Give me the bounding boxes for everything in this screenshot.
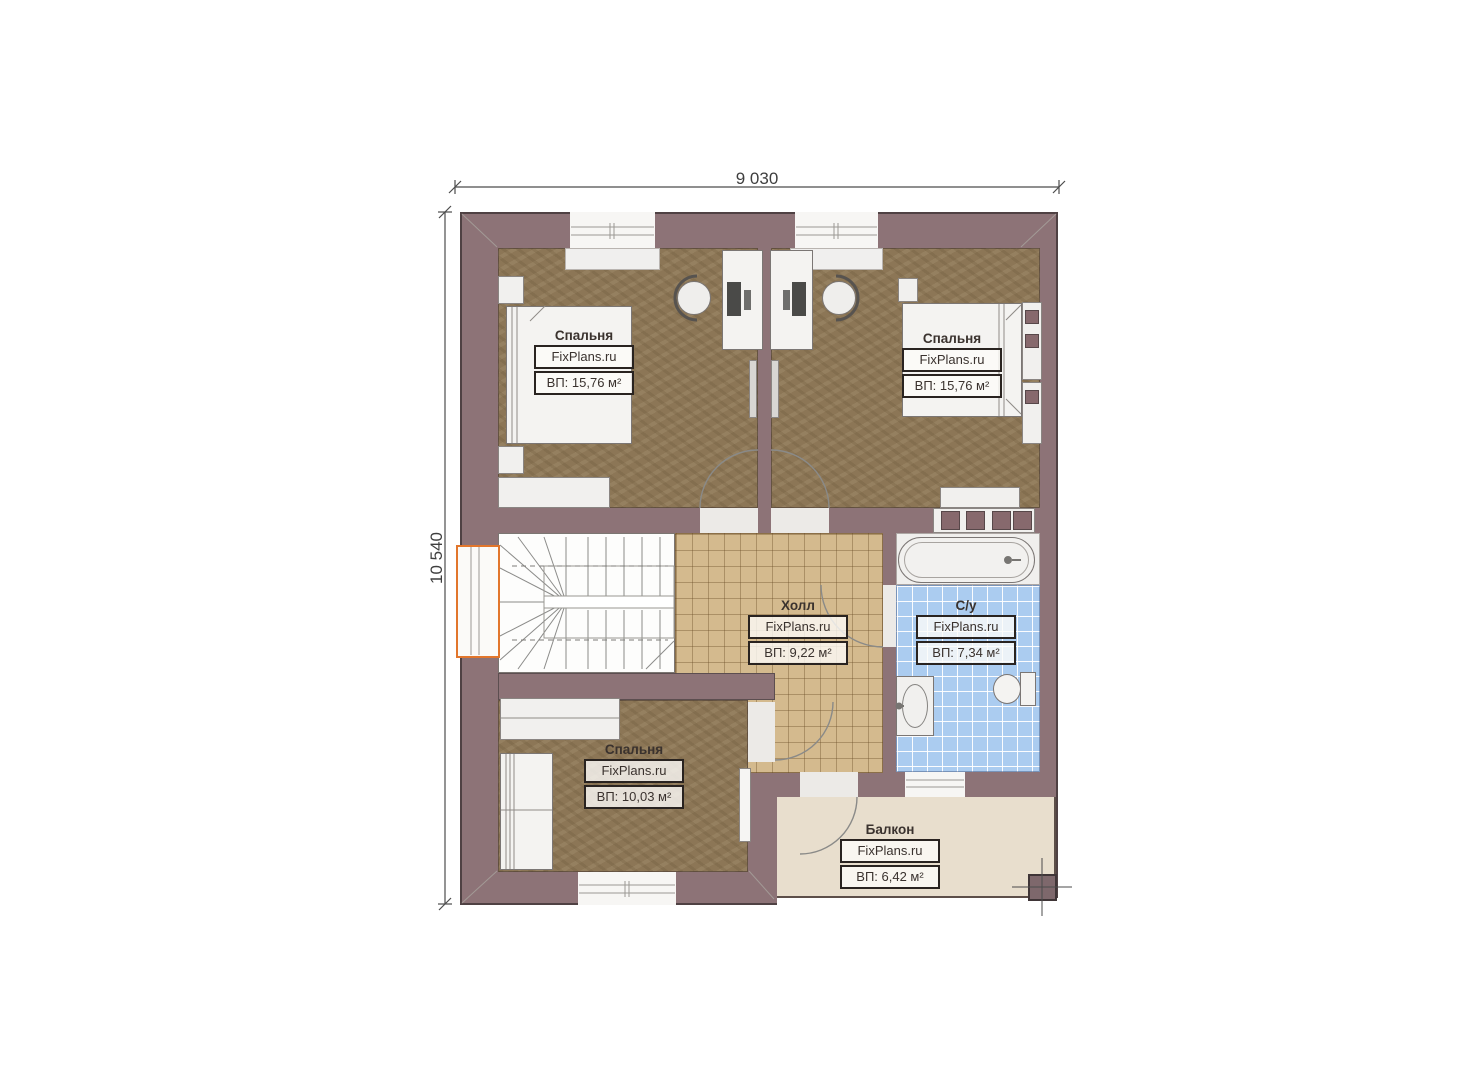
chair-right	[822, 281, 856, 315]
area-box: ВП: 15,76 м²	[534, 371, 634, 395]
watermark-box: FixPlans.ru	[748, 615, 848, 639]
room-title: Балкон	[866, 822, 915, 837]
wardrobe-bedroom-top-right	[940, 487, 1020, 508]
pocket-door-right	[771, 360, 779, 418]
door-opening-bedroom-bottom	[748, 702, 775, 762]
laptop-right	[792, 282, 806, 316]
area-box: ВП: 7,34 м²	[916, 641, 1016, 665]
label-bedroom-top-left: Спальня FixPlans.ru ВП: 15,76 м²	[534, 328, 634, 395]
shelf-square	[1025, 334, 1039, 348]
nightstand	[498, 276, 524, 304]
balcony-column	[1028, 874, 1057, 901]
window-sill-top-left	[565, 248, 660, 270]
laptop-left	[727, 282, 741, 316]
closet-square	[992, 511, 1011, 530]
toilet-tank	[1020, 672, 1036, 706]
door-opening-bathroom	[883, 585, 896, 647]
window-balcony-wall	[905, 772, 965, 797]
door-leaf-bedroom-bottom	[739, 768, 751, 842]
watermark-box: FixPlans.ru	[902, 348, 1002, 372]
shelf-square	[1025, 310, 1039, 324]
area-box: ВП: 6,42 м²	[840, 865, 940, 889]
area-box: ВП: 10,03 м²	[584, 785, 684, 809]
closet-square	[966, 511, 985, 530]
stairwell-floor	[498, 533, 675, 673]
sink-basin	[902, 684, 928, 728]
label-bedroom-bottom: Спальня FixPlans.ru ВП: 10,03 м²	[584, 742, 684, 809]
desk-item-right	[783, 290, 790, 310]
window-top-right	[795, 212, 878, 248]
room-title: С/у	[955, 598, 976, 613]
door-opening-balcony	[800, 772, 858, 797]
door-opening-bedroom-top-right	[771, 508, 829, 533]
window-bottom	[578, 872, 676, 905]
door-opening-bedroom-top-left	[700, 508, 758, 533]
room-title: Спальня	[555, 328, 613, 343]
window-stairs-highlighted	[456, 545, 500, 658]
label-balcony: Балкон FixPlans.ru ВП: 6,42 м²	[840, 822, 940, 889]
wall-below-stairs	[498, 673, 775, 700]
room-title: Спальня	[605, 742, 663, 757]
area-box: ВП: 15,76 м²	[902, 374, 1002, 398]
room-title: Спальня	[923, 331, 981, 346]
desk-item-left	[744, 290, 751, 310]
window-top-left	[570, 212, 655, 248]
watermark-box: FixPlans.ru	[584, 759, 684, 783]
pocket-door-left	[749, 360, 757, 418]
room-title: Холл	[781, 598, 815, 613]
dimension-height-label: 10 540	[427, 532, 447, 584]
watermark-box: FixPlans.ru	[534, 345, 634, 369]
dresser-bedroom-top-left	[498, 477, 610, 508]
label-bathroom: С/у FixPlans.ru ВП: 7,34 м²	[916, 598, 1016, 665]
watermark-box: FixPlans.ru	[916, 615, 1016, 639]
bathtub-inner	[904, 542, 1029, 578]
bed-bottom	[500, 753, 553, 870]
dimension-width-label: 9 030	[736, 169, 779, 189]
area-box: ВП: 9,22 м²	[748, 641, 848, 665]
closet-square	[941, 511, 960, 530]
shelf-square	[1025, 390, 1039, 404]
watermark-box: FixPlans.ru	[840, 839, 940, 863]
wardrobe-bedroom-bottom	[500, 698, 620, 740]
toilet-bowl	[993, 674, 1021, 704]
label-hall: Холл FixPlans.ru ВП: 9,22 м²	[748, 598, 848, 665]
nightstand	[898, 278, 918, 302]
closet-square	[1013, 511, 1032, 530]
nightstand	[498, 446, 524, 474]
chair-left	[677, 281, 711, 315]
floor-plan-canvas: 9 030 10 540	[0, 0, 1473, 1080]
label-bedroom-top-right: Спальня FixPlans.ru ВП: 15,76 м²	[902, 331, 1002, 398]
